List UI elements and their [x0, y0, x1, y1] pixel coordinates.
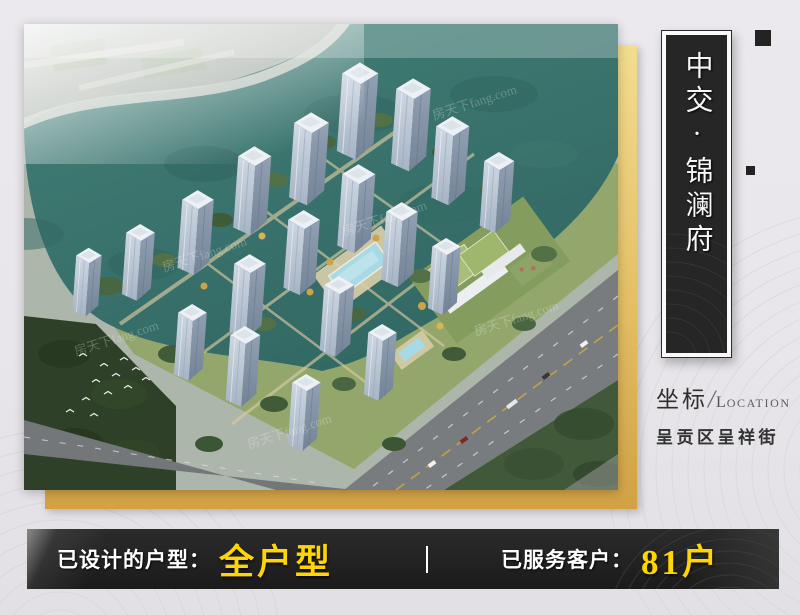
location-label-en-rest: OCATION — [727, 396, 791, 411]
location-block: 坐标 / L OCATION 呈贡区呈祥街 — [656, 380, 798, 448]
photo-tint — [24, 24, 618, 490]
location-slash: / — [708, 386, 715, 414]
stats-bar: 已设计的户型： 全户型 已服务客户： 81户 — [27, 529, 779, 589]
location-heading: 坐标 / L OCATION — [656, 380, 798, 414]
served-stat-value: 81户 — [641, 534, 720, 585]
location-label-cn: 坐标 — [656, 380, 708, 414]
location-label-en-initial: L — [716, 394, 727, 412]
project-name-banner: 中交·锦澜府 — [661, 30, 732, 358]
designed-stat-label: 已设计的户型： — [57, 544, 211, 574]
location-address: 呈贡区呈祥街 — [656, 423, 798, 448]
project-title: 中交·锦澜府 — [677, 51, 717, 353]
decor-square-large — [755, 30, 771, 46]
project-name-banner-inner: 中交·锦澜府 — [666, 35, 727, 353]
served-stat: 已服务客户： 81户 — [501, 534, 720, 585]
designed-stat-value: 全户型 — [219, 534, 333, 585]
designed-stat: 已设计的户型： 全户型 — [57, 534, 333, 585]
decor-square-small — [746, 166, 755, 175]
aerial-render-photo: 房天下fang.com 房天下fang.com 房天下fang.com 房天下f… — [24, 24, 618, 490]
served-stat-label: 已服务客户： — [501, 544, 633, 574]
stats-divider — [426, 546, 428, 573]
aerial-render-scene: 房天下fang.com 房天下fang.com 房天下fang.com 房天下f… — [24, 24, 618, 490]
